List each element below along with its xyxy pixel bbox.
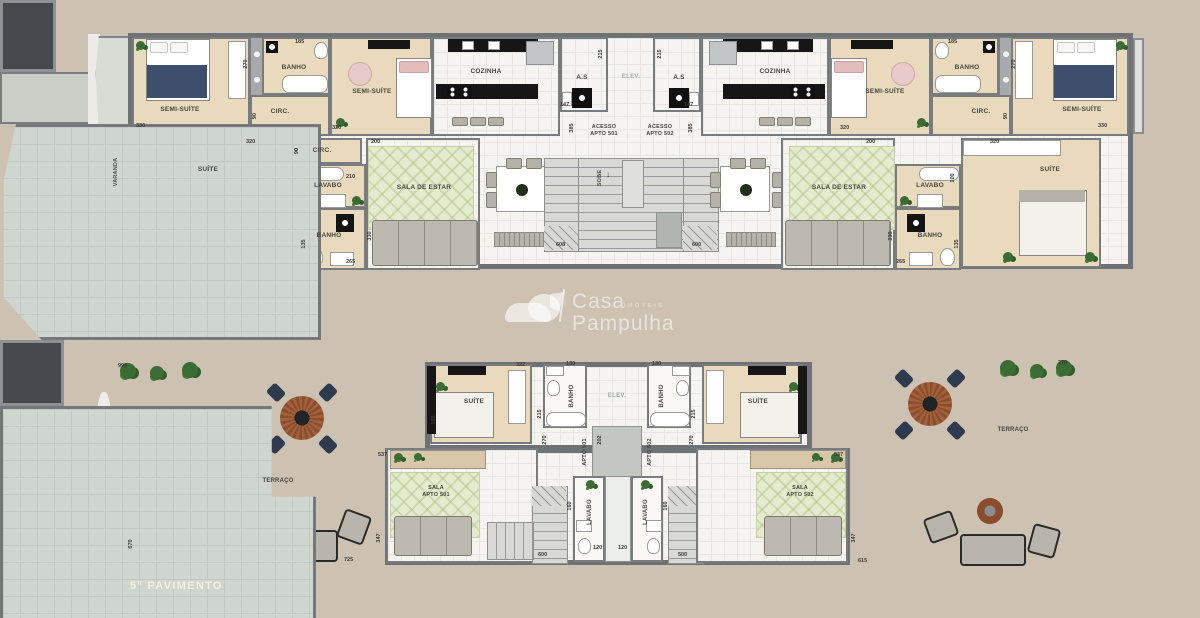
apto502-text: APTO 502 xyxy=(786,492,813,499)
plant xyxy=(789,382,798,391)
apto502-text: APTO 502 xyxy=(646,131,673,138)
plant xyxy=(182,362,198,378)
dim-120: 120 xyxy=(618,545,627,551)
table-centerpiece xyxy=(516,184,528,196)
room-label-semi-suite: SEMI-SUÍTE xyxy=(1062,106,1101,114)
terrace-label: TERRAÇO xyxy=(262,478,293,486)
dim-160: 160 xyxy=(663,501,669,510)
stair-landing xyxy=(656,212,682,248)
sofa xyxy=(394,516,472,556)
room-label-suite: SUÍTE xyxy=(198,166,218,174)
outdoor-chair xyxy=(1027,523,1062,559)
dim-90: 90 xyxy=(294,148,300,154)
desk xyxy=(368,40,410,49)
dim-322: 322 xyxy=(516,362,525,368)
watermark-brand-mid: imóveis xyxy=(624,303,664,309)
bed-headboard xyxy=(1019,190,1085,202)
room-label-as: A.S xyxy=(673,74,684,82)
dim-165: 165 xyxy=(431,415,437,424)
plant xyxy=(1000,360,1016,376)
room-label-banho: BANHO xyxy=(282,64,307,72)
dim-270: 270 xyxy=(243,59,249,68)
dim-615: 615 xyxy=(858,558,867,564)
sobe-label: SOBE xyxy=(597,170,603,186)
dim-320: 320 xyxy=(840,125,849,131)
room-label-banho: BANHO xyxy=(955,64,980,72)
dim-185: 185 xyxy=(948,39,957,45)
stairs xyxy=(487,522,534,560)
dim-265: 265 xyxy=(346,259,355,265)
acesso-text: ACESSO xyxy=(646,124,673,131)
kitchenette-counter xyxy=(798,366,807,434)
chair xyxy=(795,117,811,126)
sofa xyxy=(785,220,891,266)
plant xyxy=(917,118,926,127)
wardrobe xyxy=(1015,41,1033,99)
bathtub xyxy=(935,75,981,93)
dim-320: 320 xyxy=(332,125,341,131)
dim-215: 215 xyxy=(537,409,543,418)
plant xyxy=(812,453,820,461)
chair xyxy=(777,117,793,126)
apto-501-corridor-label: APTO 501 xyxy=(582,438,588,465)
stair-void xyxy=(592,426,642,480)
room-label-suite: SUÍTE xyxy=(464,398,484,406)
dim-160: 160 xyxy=(567,501,573,510)
apto501-text: APTO 501 xyxy=(422,492,449,499)
fire-pit xyxy=(977,498,1003,524)
dim-130: 130 xyxy=(566,361,575,367)
dim-200: 200 xyxy=(371,139,380,145)
dim-537: 537 xyxy=(378,452,387,458)
room-label-banho: BANHO xyxy=(918,232,943,240)
toilet xyxy=(578,538,591,554)
sala-text: SALA xyxy=(422,485,449,492)
bench xyxy=(494,232,544,247)
dim-185: 185 xyxy=(295,39,304,45)
dim-995: 995 xyxy=(118,363,127,369)
room-label-semi-suite: SEMI-SUÍTE xyxy=(352,88,391,96)
stove xyxy=(789,86,815,98)
dim-202: 202 xyxy=(597,435,603,444)
room-label-circ: CIRC. xyxy=(271,108,290,116)
dim-135: 135 xyxy=(301,239,307,248)
sink xyxy=(320,194,346,208)
kitchen-sink xyxy=(462,41,474,50)
chair xyxy=(710,192,721,208)
wardrobe xyxy=(963,140,1061,156)
outdoor-chair xyxy=(946,368,967,389)
outdoor-sofa xyxy=(960,534,1026,566)
bench xyxy=(726,232,776,247)
varanda-label: VARANDA xyxy=(113,158,119,187)
sink xyxy=(546,366,564,376)
dim-330: 330 xyxy=(367,231,373,240)
stair-core xyxy=(622,160,644,208)
sink xyxy=(917,194,943,208)
elevator-label: ELEV. xyxy=(608,393,626,399)
stairs-turn xyxy=(532,486,566,506)
dim-120: 120 xyxy=(593,545,602,551)
room-label-cozinha: COZINHA xyxy=(470,68,501,76)
outdoor-chair xyxy=(318,382,339,403)
dim-537: 537 xyxy=(834,452,843,458)
sink xyxy=(266,41,278,53)
sala-apto501-label: SALAAPTO 501 xyxy=(422,485,449,499)
dim-135: 135 xyxy=(954,239,960,248)
kitchen-sink xyxy=(488,41,500,50)
shower xyxy=(907,214,925,232)
room-label-suite: SUÍTE xyxy=(1040,166,1060,174)
dim-270: 270 xyxy=(542,435,548,444)
dim-270: 270 xyxy=(1011,59,1017,68)
chair xyxy=(730,158,746,169)
dim-270: 270 xyxy=(1058,360,1067,366)
room-label-as: A.S xyxy=(576,74,587,82)
kitchen-sink xyxy=(787,41,799,50)
wardrobe xyxy=(508,370,526,424)
fridge xyxy=(526,41,554,65)
dim-215: 215 xyxy=(598,49,604,58)
pillow xyxy=(399,61,429,73)
dim-147: 147 xyxy=(684,102,693,108)
dim-147: 147 xyxy=(560,102,569,108)
round-rug xyxy=(348,62,372,86)
dim-270: 270 xyxy=(689,435,695,444)
elevator-label: ELEV. xyxy=(622,74,640,80)
outdoor-chair xyxy=(318,434,339,455)
terrace-label: TERRAÇO xyxy=(997,427,1028,435)
dim-385: 385 xyxy=(688,123,694,132)
dim-320: 320 xyxy=(990,139,999,145)
chair xyxy=(486,172,497,188)
plant xyxy=(136,41,145,50)
sobe-arrow-icon: ↓ xyxy=(606,170,610,179)
sofa xyxy=(372,220,478,266)
chair xyxy=(452,117,468,126)
laundry-sink xyxy=(572,88,592,108)
toilet xyxy=(940,248,955,266)
toilet xyxy=(647,538,660,554)
desk xyxy=(748,366,786,375)
terrace-left xyxy=(0,124,321,340)
elevator-shaft xyxy=(0,0,56,72)
toilet xyxy=(547,380,560,396)
apto501-text: APTO 501 xyxy=(590,131,617,138)
acesso-text: ACESSO xyxy=(590,124,617,131)
room-label-lavabo: LAVABO xyxy=(314,182,342,190)
dim-90: 90 xyxy=(1003,113,1009,119)
right-balcony-strip xyxy=(1133,38,1144,134)
outdoor-chair xyxy=(336,508,373,546)
room-label-banho: BANHO xyxy=(317,232,342,240)
plant xyxy=(1116,41,1125,50)
dim-600: 600 xyxy=(538,552,547,558)
sala-text: SALA xyxy=(786,485,813,492)
chair xyxy=(710,172,721,188)
bathtub xyxy=(650,412,690,427)
stove xyxy=(446,86,472,98)
room-label-lavabo: LAVABO xyxy=(587,499,593,525)
room-label-sala-estar: SALA DE ESTAR xyxy=(397,184,451,192)
plant xyxy=(414,453,422,461)
sala-apto502-label: SALAAPTO 502 xyxy=(786,485,813,499)
chair xyxy=(470,117,486,126)
toilet xyxy=(314,42,328,59)
room-label-lavabo: LAVABO xyxy=(643,499,649,525)
plant xyxy=(436,382,445,391)
floor-plan-canvas: VARANDA SEMI-SUÍTE 330 270 BANHO 185 CIR… xyxy=(0,0,1200,618)
dim-347: 347 xyxy=(851,533,857,542)
table-centerpiece xyxy=(740,184,752,196)
plant xyxy=(641,480,650,489)
watermark-brand-top: Casa xyxy=(572,290,625,314)
room-label-circ: CIRC. xyxy=(313,147,332,155)
floor5-title: 5° PAVIMENTO xyxy=(130,580,223,592)
room-label-banho: BANHO xyxy=(569,385,575,408)
dim-210: 210 xyxy=(346,174,355,180)
pillow xyxy=(1077,42,1095,53)
desk xyxy=(448,366,486,375)
outdoor-chair xyxy=(922,510,959,545)
desk xyxy=(851,40,893,49)
chair xyxy=(486,192,497,208)
wardrobe xyxy=(228,41,246,99)
counter xyxy=(390,450,486,469)
dim-320: 320 xyxy=(246,139,255,145)
chair xyxy=(526,158,542,169)
dim-130: 130 xyxy=(652,361,661,367)
dim-330: 330 xyxy=(136,123,145,129)
sink xyxy=(909,252,933,266)
dim-385: 385 xyxy=(569,123,575,132)
plant xyxy=(1003,252,1013,262)
sink xyxy=(672,366,690,376)
chair xyxy=(488,117,504,126)
access-apto-501-label: ACESSOAPTO 501 xyxy=(590,124,617,138)
toilet xyxy=(676,380,689,396)
room-label-semi-suite: SEMI-SUÍTE xyxy=(160,106,199,114)
chair xyxy=(506,158,522,169)
plant xyxy=(900,196,909,205)
outdoor-chair xyxy=(894,368,915,389)
dim-330: 330 xyxy=(1098,123,1107,129)
room-label-circ: CIRC. xyxy=(972,108,991,116)
room-label-cozinha: COZINHA xyxy=(759,68,790,76)
pillow xyxy=(834,61,864,73)
toilet xyxy=(935,42,949,59)
access-apto-502-label: ACESSOAPTO 502 xyxy=(646,124,673,138)
outdoor-chair xyxy=(894,420,915,441)
apto-502-corridor-label: APTO 502 xyxy=(647,438,653,465)
plant xyxy=(586,480,595,489)
dim-608: 608 xyxy=(556,242,565,248)
bed-blanket xyxy=(1054,65,1114,98)
bathtub xyxy=(282,75,328,93)
chair xyxy=(750,158,766,169)
pillow xyxy=(170,42,188,53)
sofa xyxy=(764,516,842,556)
plant xyxy=(150,366,164,380)
shower xyxy=(336,214,354,232)
bed-blanket xyxy=(147,65,207,98)
dim-200: 200 xyxy=(866,139,875,145)
chair xyxy=(759,117,775,126)
dim-265: 265 xyxy=(896,259,905,265)
room-label-banho: BANHO xyxy=(659,385,665,408)
plant xyxy=(394,453,403,462)
plant xyxy=(352,196,361,205)
dim-215: 215 xyxy=(657,49,663,58)
dim-215: 215 xyxy=(691,409,697,418)
dim-725: 725 xyxy=(344,557,353,563)
outdoor-chair xyxy=(266,382,287,403)
dim-90: 90 xyxy=(252,113,258,119)
wardrobe xyxy=(706,370,724,424)
dim-670: 670 xyxy=(128,539,134,548)
dim-100: 100 xyxy=(950,173,956,182)
sink xyxy=(983,41,995,53)
fridge xyxy=(709,41,737,65)
kitchen-sink xyxy=(761,41,773,50)
dim-347: 347 xyxy=(376,533,382,542)
plant xyxy=(1030,364,1044,378)
watermark-brand-bottom: Pampulha xyxy=(572,312,675,336)
round-rug xyxy=(891,62,915,86)
outdoor-chair xyxy=(946,420,967,441)
elevator-shaft xyxy=(0,340,64,406)
bathtub xyxy=(546,412,586,427)
room-label-sala-estar: SALA DE ESTAR xyxy=(812,184,866,192)
plant xyxy=(1085,252,1095,262)
dim-500: 500 xyxy=(678,552,687,558)
pillow xyxy=(150,42,168,53)
round-table xyxy=(280,396,324,440)
round-table xyxy=(908,382,952,426)
room-label-suite: SUÍTE xyxy=(748,398,768,406)
room-label-lavabo: LAVABO xyxy=(916,182,944,190)
dim-330: 330 xyxy=(888,231,894,240)
dim-600: 600 xyxy=(692,242,701,248)
room-label-semi-suite: SEMI-SUÍTE xyxy=(865,88,904,96)
pillow xyxy=(1057,42,1075,53)
